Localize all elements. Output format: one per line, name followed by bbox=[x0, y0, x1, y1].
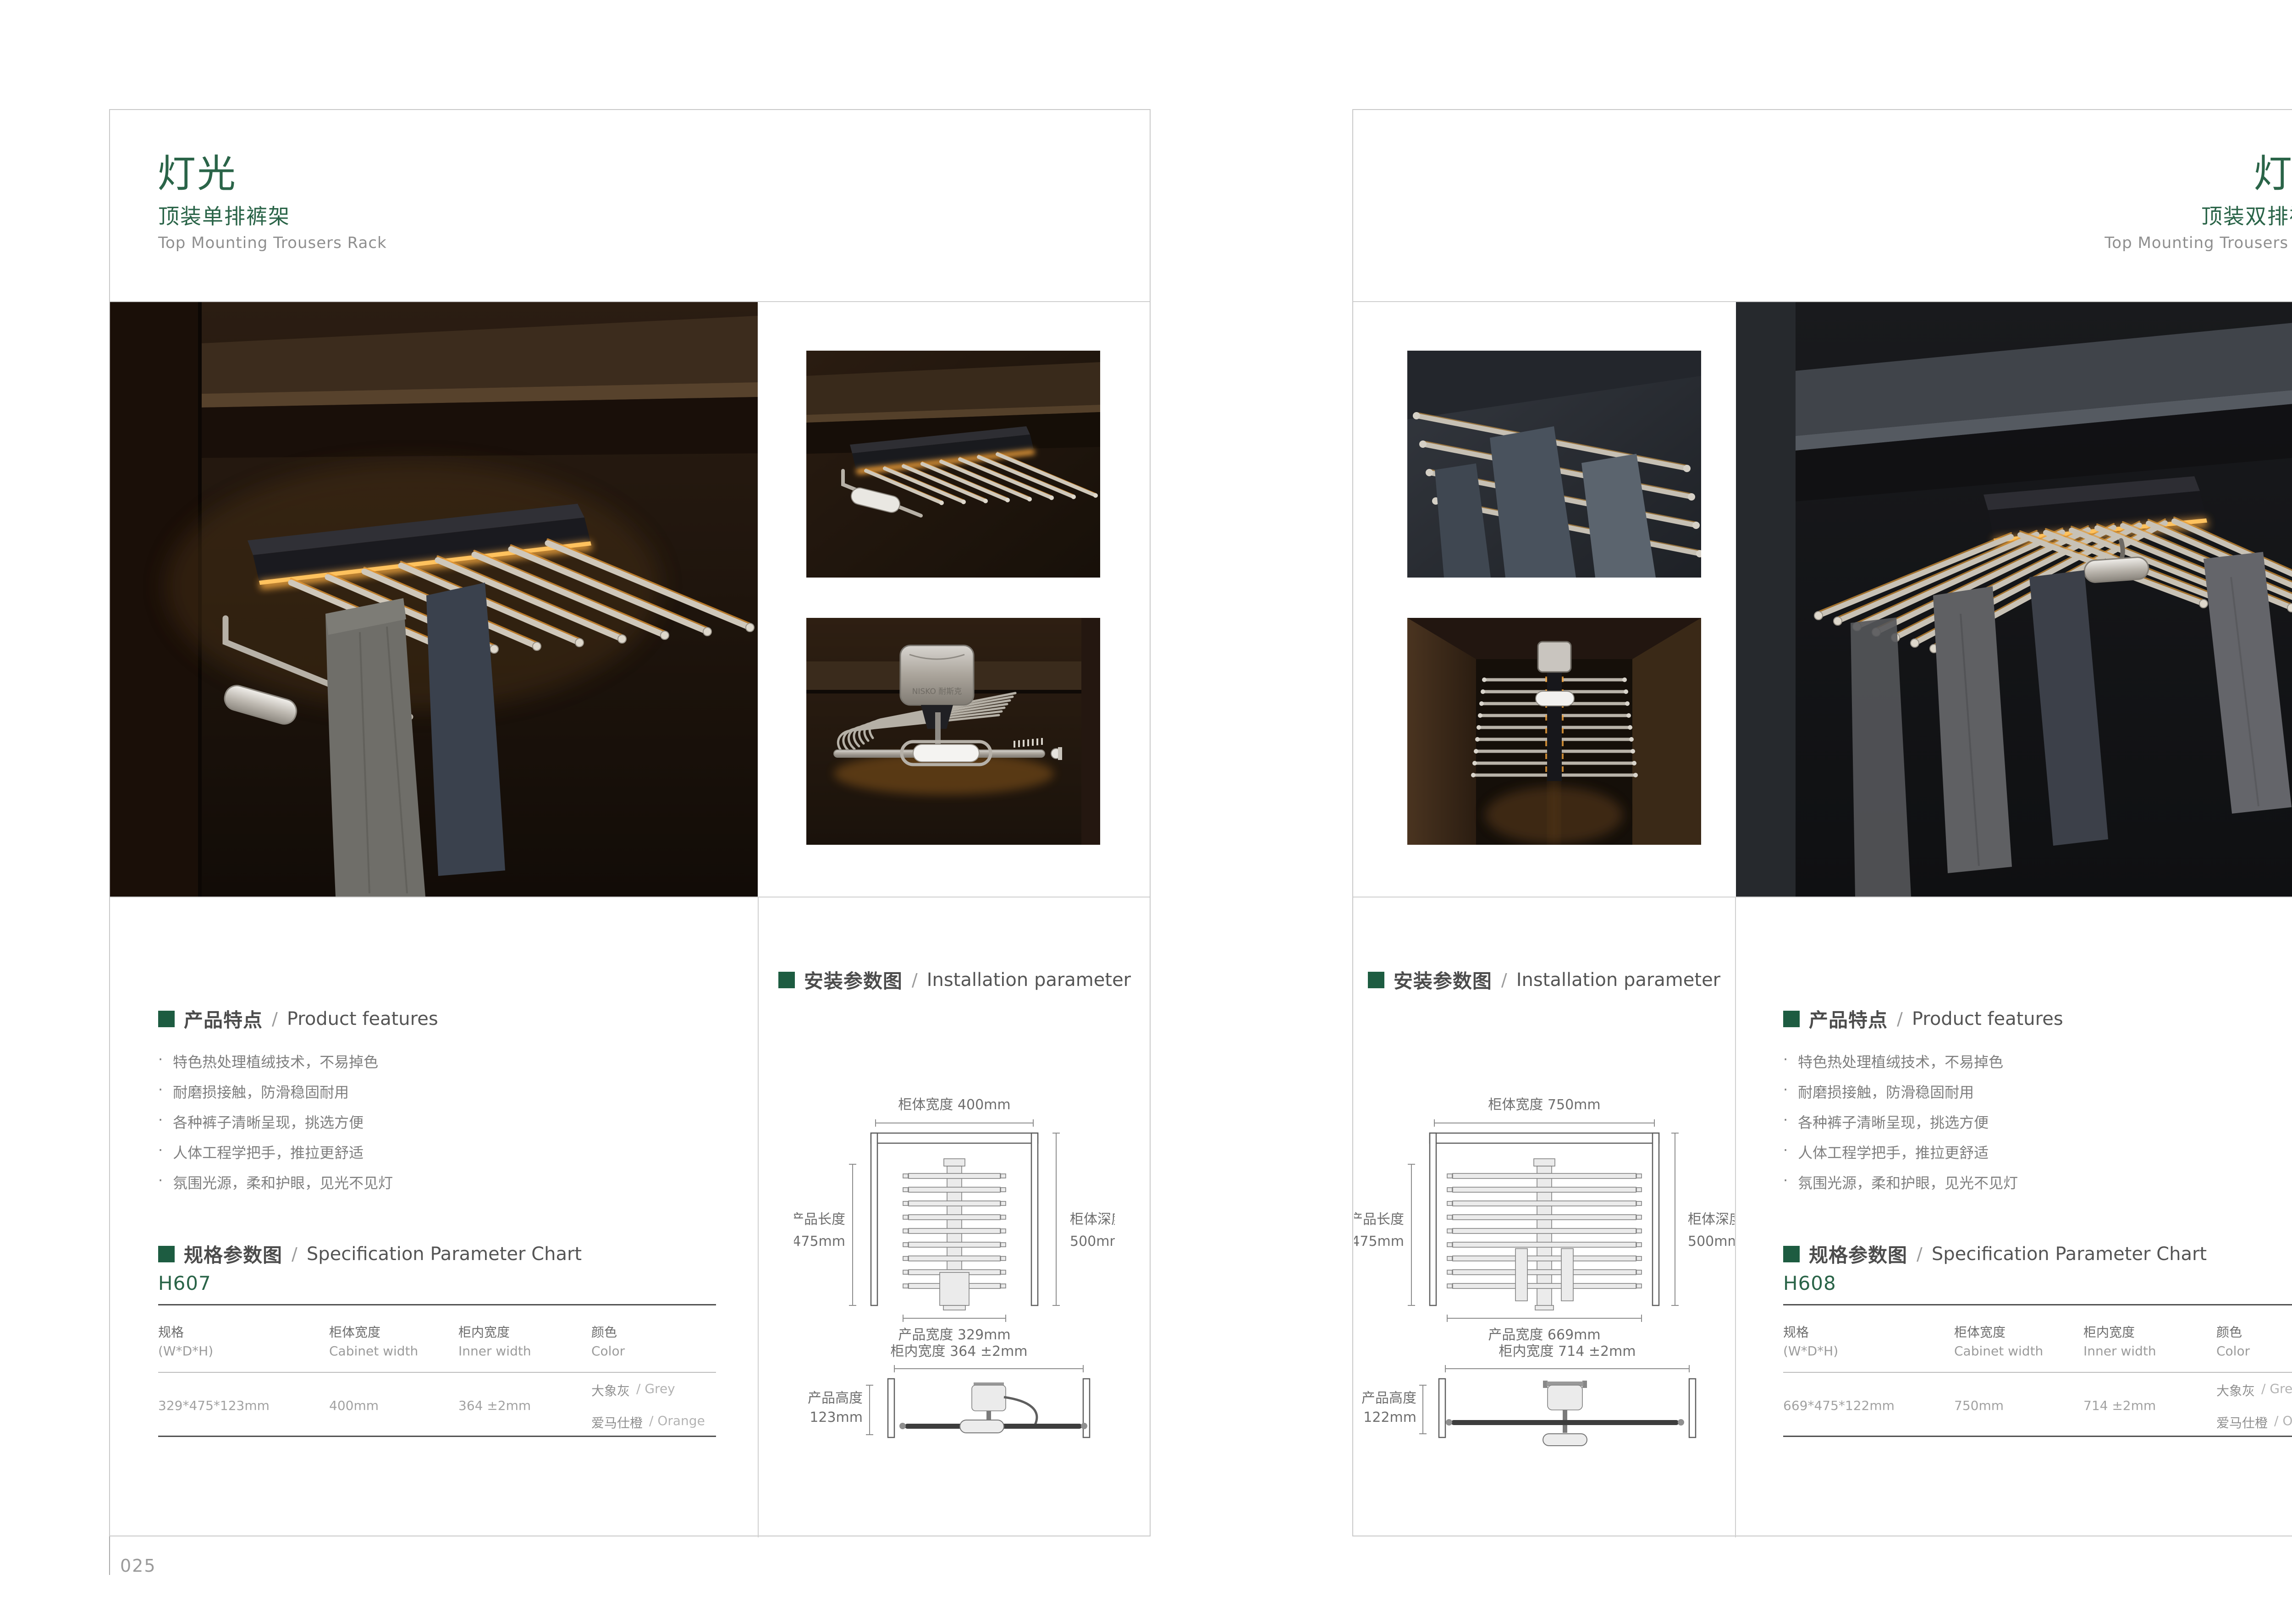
heading-separator: / bbox=[1917, 1244, 1923, 1264]
heading-separator: / bbox=[912, 970, 918, 990]
dim-product-height-val: 122mm bbox=[1363, 1409, 1416, 1426]
value-size: 669*475*122mm bbox=[1783, 1398, 1895, 1413]
installation-diagram-front-view: 柜内宽度 714 ±2mm 产品高度 122mm bbox=[1354, 1343, 1735, 1448]
feature-item: ·氛围光源，柔和护眼，见光不见灯 bbox=[158, 1172, 393, 1193]
col-header-size-en: (W*D*H) bbox=[158, 1343, 213, 1359]
feature-text: 人体工程学把手，推拉更舒适 bbox=[1798, 1141, 1989, 1162]
col-header-cabinet-en: Cabinet width bbox=[1954, 1343, 2043, 1359]
page-subtitle: 顶装单排裤架 bbox=[158, 200, 290, 230]
feature-text: 特色热处理植绒技术，不易掉色 bbox=[1798, 1051, 2003, 1072]
col-header-inner-cn: 柜内宽度 bbox=[2083, 1322, 2135, 1341]
feature-text: 特色热处理植绒技术，不易掉色 bbox=[173, 1051, 378, 1072]
table-rule-bottom bbox=[1783, 1436, 2292, 1437]
installation-heading: 安装参数图 / Installation parameter bbox=[758, 966, 1152, 994]
installation-heading-cn: 安装参数图 bbox=[804, 966, 903, 994]
model-code: H607 bbox=[158, 1272, 211, 1294]
installation-diagram-front-view: 柜内宽度 364 ±2mm 产品高度 123mm bbox=[794, 1343, 1115, 1448]
table-rule-mid bbox=[158, 1372, 716, 1373]
dim-product-width: 产品宽度 329mm bbox=[898, 1327, 1010, 1343]
feature-text: 人体工程学把手，推拉更舒适 bbox=[173, 1141, 364, 1162]
photo-detail-hanger-mechanism: NISKO 耐斯克 bbox=[806, 618, 1100, 845]
table-rule-top bbox=[158, 1304, 716, 1305]
bullet-icon: · bbox=[158, 1141, 163, 1162]
features-heading-cn: 产品特点 bbox=[1809, 1005, 1888, 1033]
content-divider-horizontal bbox=[110, 897, 1150, 897]
bullet-icon: · bbox=[1783, 1081, 1788, 1102]
spec-heading-en: Specification Parameter Chart bbox=[307, 1244, 582, 1265]
table-rule-top bbox=[1783, 1304, 2292, 1305]
heading-separator: / bbox=[292, 1244, 298, 1264]
feature-text: 氛围光源，柔和护眼，见光不见灯 bbox=[1798, 1172, 2018, 1193]
dim-product-height-cn: 产品高度 bbox=[1361, 1390, 1416, 1406]
heading-separator: / bbox=[1501, 970, 1507, 990]
page-number-left: 025 bbox=[120, 1556, 156, 1576]
rack-detail-illustration bbox=[806, 351, 1100, 578]
dim-inner-width: 柜内宽度 364 ±2mm bbox=[890, 1343, 1027, 1360]
page-title: 灯光 bbox=[157, 143, 237, 198]
installation-heading-en: Installation parameter bbox=[927, 969, 1131, 991]
bullet-icon: · bbox=[158, 1081, 163, 1102]
installation-heading: 安装参数图 / Installation parameter bbox=[1353, 966, 1735, 994]
spec-heading-cn: 规格参数图 bbox=[1809, 1240, 1907, 1268]
page-header-right: 灯光 顶装双排裤架 Top Mounting Trousers Rack bbox=[1353, 110, 2292, 302]
photo-main-single-row-rack bbox=[110, 302, 758, 897]
double-bars-illustration bbox=[1407, 351, 1701, 578]
page-corner-rule-left bbox=[109, 1536, 110, 1575]
catalog-spread: 灯光 顶装单排裤架 Top Mounting Trousers Rack bbox=[0, 0, 2292, 1624]
hanger-mechanism-illustration: NISKO 耐斯克 bbox=[806, 618, 1100, 845]
col-header-color-cn: 颜色 bbox=[2216, 1322, 2242, 1341]
feature-text: 耐磨损接触，防滑稳固耐用 bbox=[173, 1081, 349, 1102]
catalog-page-right: 灯光 顶装双排裤架 Top Mounting Trousers Rack bbox=[1352, 109, 2292, 1536]
green-square-icon bbox=[158, 1011, 175, 1027]
feature-item: ·人体工程学把手，推拉更舒适 bbox=[1783, 1141, 1989, 1162]
page-subtitle-en: Top Mounting Trousers Rack bbox=[2105, 234, 2292, 252]
spec-heading-cn: 规格参数图 bbox=[184, 1240, 282, 1268]
dim-cabinet-depth-cn: 柜体深度 bbox=[1688, 1211, 1735, 1228]
dim-cabinet-width: 柜体宽度 750mm bbox=[1488, 1097, 1600, 1113]
value-inner-width: 714 ±2mm bbox=[2083, 1398, 2156, 1413]
value-cabinet-width: 750mm bbox=[1954, 1398, 2004, 1413]
feature-item: ·各种裤子清晰呈现，挑选方便 bbox=[1783, 1111, 1989, 1132]
feature-text: 氛围光源，柔和护眼，见光不见灯 bbox=[173, 1172, 393, 1193]
page-subtitle-en: Top Mounting Trousers Rack bbox=[158, 234, 387, 252]
dim-product-length-cn: 产品长度 bbox=[794, 1211, 845, 1228]
dim-cabinet-depth-val: 500mm bbox=[1070, 1233, 1115, 1250]
feature-item: ·耐磨损接触，防滑稳固耐用 bbox=[158, 1081, 349, 1102]
feature-text: 耐磨损接触，防滑稳固耐用 bbox=[1798, 1081, 1974, 1102]
features-heading: 产品特点 / Product features bbox=[1783, 1005, 2063, 1033]
col-header-cabinet-en: Cabinet width bbox=[329, 1343, 418, 1359]
installation-heading-cn: 安装参数图 bbox=[1394, 966, 1492, 994]
dim-product-length-cn: 产品长度 bbox=[1354, 1211, 1404, 1228]
spec-table: 规格 (W*D*H) 柜体宽度 Cabinet width 柜内宽度 Inner… bbox=[158, 1304, 716, 1437]
value-color-grey: 大象灰/ Grey bbox=[2216, 1381, 2292, 1399]
dim-product-width: 产品宽度 669mm bbox=[1488, 1327, 1600, 1343]
brand-logo-text: NISKO 耐斯克 bbox=[912, 687, 962, 696]
features-heading-en: Product features bbox=[287, 1008, 438, 1029]
feature-item: ·耐磨损接触，防滑稳固耐用 bbox=[1783, 1081, 1974, 1102]
dim-cabinet-width: 柜体宽度 400mm bbox=[898, 1097, 1010, 1113]
col-header-size-cn: 规格 bbox=[1783, 1322, 1809, 1341]
col-header-inner-en: Inner width bbox=[2083, 1343, 2156, 1359]
dim-product-height-cn: 产品高度 bbox=[808, 1390, 863, 1406]
feature-item: ·特色热处理植绒技术，不易掉色 bbox=[158, 1051, 378, 1072]
bullet-icon: · bbox=[158, 1111, 163, 1132]
dim-inner-width: 柜内宽度 714 ±2mm bbox=[1499, 1343, 1636, 1360]
col-header-size-cn: 规格 bbox=[158, 1322, 184, 1341]
spec-table: 规格 (W*D*H) 柜体宽度 Cabinet width 柜内宽度 Inner… bbox=[1783, 1304, 2292, 1437]
page-title: 灯光 bbox=[2253, 143, 2292, 198]
bullet-icon: · bbox=[1783, 1141, 1788, 1162]
dim-product-length-val: 475mm bbox=[794, 1233, 845, 1250]
col-header-color-en: Color bbox=[591, 1343, 625, 1359]
photo-detail-double-bars bbox=[1407, 351, 1701, 578]
feature-text: 各种裤子清晰呈现，挑选方便 bbox=[1798, 1111, 1989, 1132]
col-header-cabinet-cn: 柜体宽度 bbox=[329, 1322, 380, 1341]
spec-heading-en: Specification Parameter Chart bbox=[1932, 1244, 2207, 1265]
green-square-icon bbox=[158, 1246, 175, 1262]
feature-item: ·各种裤子清晰呈现，挑选方便 bbox=[158, 1111, 364, 1132]
wardrobe-photo-illustration bbox=[1736, 302, 2292, 897]
green-square-icon bbox=[778, 972, 795, 988]
installation-heading-en: Installation parameter bbox=[1516, 969, 1720, 991]
col-header-size-en: (W*D*H) bbox=[1783, 1343, 1838, 1359]
content-divider-vertical bbox=[1735, 897, 1736, 1537]
value-size: 329*475*123mm bbox=[158, 1398, 270, 1413]
bullet-icon: · bbox=[1783, 1111, 1788, 1132]
content-divider-horizontal bbox=[1353, 897, 2292, 897]
installation-diagram-top-view: 柜体宽度 400mm 柜体深度 500mm 产品长度 475mm bbox=[794, 1091, 1115, 1348]
dim-cabinet-depth-val: 500mm bbox=[1688, 1233, 1735, 1250]
dim-product-height-val: 123mm bbox=[810, 1409, 863, 1426]
feature-item: ·特色热处理植绒技术，不易掉色 bbox=[1783, 1051, 2003, 1072]
value-color-orange: 爱马仕橙/ Orange bbox=[591, 1413, 705, 1431]
table-rule-bottom bbox=[158, 1436, 716, 1437]
feature-item: ·氛围光源，柔和护眼，见光不见灯 bbox=[1783, 1172, 2018, 1193]
col-header-color-cn: 颜色 bbox=[591, 1322, 617, 1341]
feature-text: 各种裤子清晰呈现，挑选方便 bbox=[173, 1111, 364, 1132]
spec-heading: 规格参数图 / Specification Parameter Chart bbox=[158, 1240, 582, 1268]
features-heading-cn: 产品特点 bbox=[184, 1005, 263, 1033]
page-number-right: 026 bbox=[2280, 1556, 2292, 1576]
spec-heading: 规格参数图 / Specification Parameter Chart bbox=[1783, 1240, 2207, 1268]
dim-product-length-val: 475mm bbox=[1354, 1233, 1404, 1250]
page-header-left: 灯光 顶装单排裤架 Top Mounting Trousers Rack bbox=[110, 110, 1150, 302]
installation-diagram-top-view: 柜体宽度 750mm 柜体深度 500mm 产品长度 475mm bbox=[1354, 1091, 1735, 1348]
bullet-icon: · bbox=[1783, 1051, 1788, 1072]
table-rule-mid bbox=[1783, 1372, 2292, 1373]
features-heading: 产品特点 / Product features bbox=[158, 1005, 438, 1033]
model-code: H608 bbox=[1783, 1272, 1836, 1294]
page-subtitle: 顶装双排裤架 bbox=[2201, 200, 2292, 230]
green-square-icon bbox=[1783, 1011, 1800, 1027]
value-color-orange: 爱马仕橙/ Orange bbox=[2216, 1413, 2292, 1431]
heading-separator: / bbox=[272, 1009, 278, 1029]
green-square-icon bbox=[1368, 972, 1384, 988]
col-header-color-en: Color bbox=[2216, 1343, 2250, 1359]
photo-detail-rack-angle bbox=[806, 351, 1100, 578]
bottom-view-illustration bbox=[1407, 618, 1701, 845]
heading-separator: / bbox=[1897, 1009, 1903, 1029]
bullet-icon: · bbox=[1783, 1172, 1788, 1193]
features-heading-en: Product features bbox=[1912, 1008, 2063, 1029]
catalog-page-left: 灯光 顶装单排裤架 Top Mounting Trousers Rack bbox=[109, 109, 1151, 1536]
photo-main-double-row-rack bbox=[1736, 302, 2292, 897]
bullet-icon: · bbox=[158, 1172, 163, 1193]
value-color-grey: 大象灰/ Grey bbox=[591, 1381, 675, 1399]
bullet-icon: · bbox=[158, 1051, 163, 1072]
green-square-icon bbox=[1783, 1246, 1800, 1262]
value-cabinet-width: 400mm bbox=[329, 1398, 379, 1413]
col-header-inner-cn: 柜内宽度 bbox=[458, 1322, 510, 1341]
value-inner-width: 364 ±2mm bbox=[458, 1398, 531, 1413]
dim-cabinet-depth-cn: 柜体深度 bbox=[1070, 1211, 1115, 1228]
wardrobe-photo-illustration bbox=[110, 302, 758, 897]
col-header-cabinet-cn: 柜体宽度 bbox=[1954, 1322, 2005, 1341]
col-header-inner-en: Inner width bbox=[458, 1343, 531, 1359]
photo-detail-bottom-view bbox=[1407, 618, 1701, 845]
feature-item: ·人体工程学把手，推拉更舒适 bbox=[158, 1141, 364, 1162]
